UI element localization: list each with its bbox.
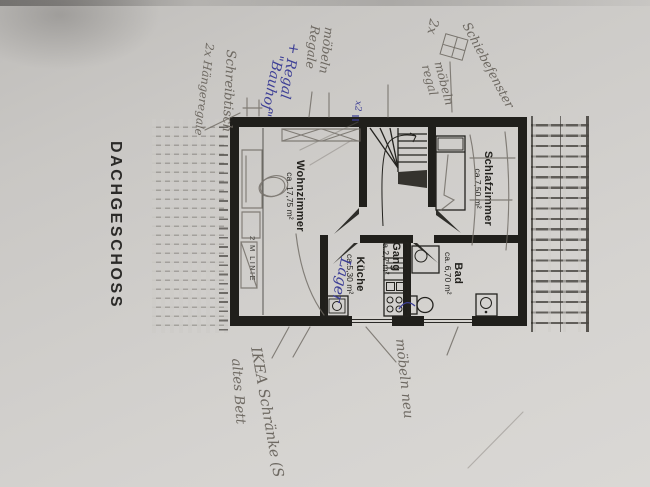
- kitchen-sink-icon: [387, 283, 405, 291]
- wall-gang-schlafzimmer: [428, 127, 436, 207]
- room-label-schlafzimmer: Schlafzimmer ca.7,50 m²: [472, 151, 494, 226]
- bed-icon: [436, 136, 465, 210]
- shelf-sketch: [282, 129, 360, 141]
- sofa-sketch: [242, 150, 262, 238]
- shower-icon: [412, 246, 439, 273]
- wall-wohnzimmer-gang: [359, 127, 367, 207]
- wall-left: [230, 117, 239, 326]
- window-bad: [424, 316, 472, 326]
- annotation-lager: Lager: [329, 257, 354, 304]
- annotation-altes-bett: altes Bett: [228, 358, 247, 425]
- balcony-hatching-right: [531, 116, 589, 332]
- annotation-ikea-schraenke: IKEA Schränke (S: [246, 346, 285, 479]
- wall-kueche-left: [320, 235, 328, 316]
- room-label-gang: Gang ca.2,7 m²: [380, 239, 402, 274]
- two-meter-line-label: 2 M LINIE: [248, 236, 257, 282]
- room-label-bad: Bad ca. 6,70 m²: [442, 252, 464, 295]
- window-kueche: [352, 316, 392, 326]
- annotation-schreibtisch: Schreibtisch: [218, 49, 237, 132]
- stove-icon: [387, 297, 402, 312]
- wall-kueche-bad: [403, 243, 411, 316]
- annotation-moebeln-regale: möbeln Regale: [302, 25, 336, 84]
- page-title: DACHGESCHOSS: [106, 141, 124, 309]
- door-bad: [413, 243, 438, 263]
- roof-hatching-left: [152, 119, 228, 333]
- annotation-schiebefenster: Schiebefenster: [460, 20, 517, 111]
- annotation-moebeln-regal: möbeln regal: [419, 60, 458, 119]
- wall-top: [230, 117, 527, 127]
- door-schlafzimmer: [436, 209, 461, 233]
- wall-mid-b: [434, 235, 518, 243]
- annotation-moebeln-neu: möbeln neu: [392, 338, 415, 419]
- stairs-icon: [370, 128, 427, 226]
- wall-right: [518, 117, 527, 326]
- window-sketch-icon: [439, 33, 468, 61]
- stray-pencil-line: [468, 412, 523, 468]
- room-label-wohnzimmer: Wohnzimmer ca. 17,75 m²: [284, 160, 306, 232]
- photo-corner-shade: [0, 0, 160, 70]
- annotation-x2: x2: [351, 100, 362, 112]
- annotation-2x: 2x: [423, 18, 440, 36]
- washbasin-icon: [476, 294, 497, 316]
- door-wohnzimmer: [334, 208, 359, 234]
- toilet-icon: [410, 296, 433, 314]
- scanned-floor-plan-page: DACHGESCHOSS Wohnzimmer ca. 17,75 m² Gan…: [0, 0, 650, 487]
